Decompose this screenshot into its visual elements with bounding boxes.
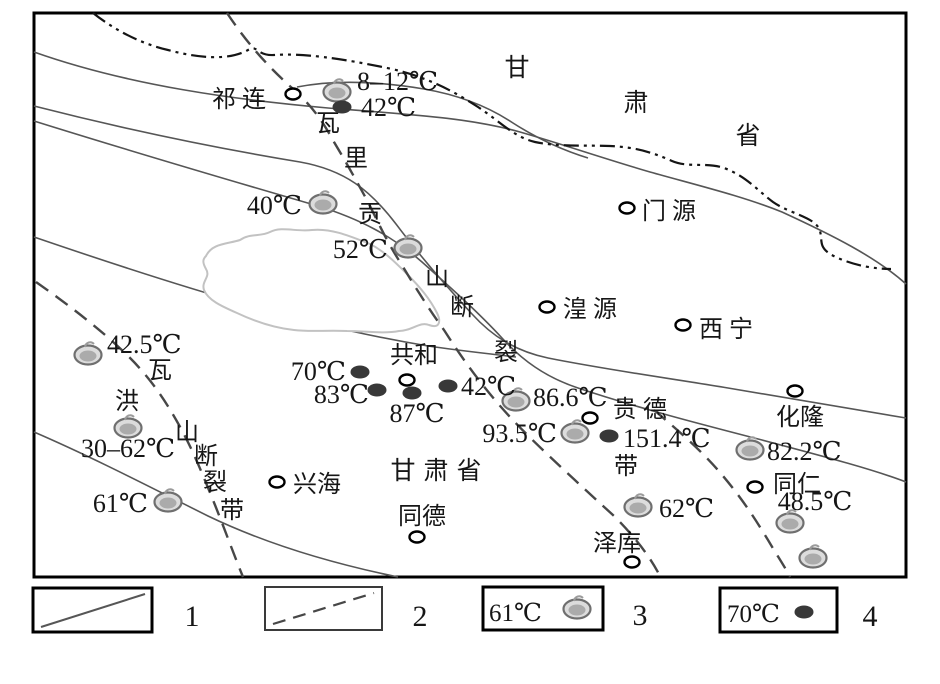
fault-name-char: 山 (425, 264, 449, 291)
fault-name-char: 山 (175, 419, 199, 446)
region-label: 省 (735, 122, 768, 150)
boiling-spring-marker (600, 430, 619, 443)
city-marker (400, 375, 415, 386)
fault-name-char: 裂 (203, 469, 227, 496)
city-marker (748, 482, 763, 493)
region-label: 甘 (504, 54, 537, 82)
boiling-spring-marker (351, 366, 370, 379)
warm-spring-temp-label: 62℃ (659, 494, 714, 523)
city-marker (620, 203, 635, 214)
boiling-spring-marker (403, 387, 422, 400)
city-marker (410, 532, 425, 543)
legend-item-number: 4 (863, 600, 878, 633)
warm-spring-temp-label: 30–62℃ (81, 434, 175, 463)
fault-name-char: 瓦 (316, 111, 340, 137)
city-label: 泽库 (593, 530, 641, 557)
city-marker (676, 320, 691, 331)
boiling-spring-marker (439, 380, 458, 393)
fault-name-char: 断 (450, 294, 474, 321)
fault-name-char: 里 (344, 146, 368, 172)
city-marker (583, 413, 598, 424)
fault-name-char: 带 (614, 453, 638, 480)
region-label: 甘肃省 (390, 457, 489, 485)
city-marker (270, 477, 285, 488)
fault-name-char: 瓦 (148, 358, 172, 384)
legend-item-number: 3 (633, 599, 648, 632)
boiling-spring-temp-label: 151.4℃ (623, 424, 711, 453)
city-marker (540, 302, 555, 313)
warm-spring-temp-label: 82.2℃ (767, 437, 842, 466)
city-label: 湟源 (563, 296, 623, 323)
warm-spring-temp-label: 8–12℃ (357, 67, 438, 96)
warm-spring-temp-label: 93.5℃ (482, 419, 557, 448)
fault-name-char: 裂 (494, 339, 518, 366)
fault-name-char: 带 (220, 497, 244, 524)
legend-warm-spring-temp: 61℃ (489, 600, 542, 627)
city-label: 共和 (390, 342, 438, 369)
boiling-spring-temp-label: 42℃ (361, 93, 416, 122)
region-label: 肃 (623, 89, 656, 117)
boiling-spring-temp-label: 83℃ (314, 380, 369, 409)
warm-spring-temp-label: 86.6℃ (533, 383, 608, 412)
legend-boiling-spring-temp: 70℃ (727, 601, 780, 628)
legend-item-number: 2 (413, 600, 428, 633)
fault-name-char: 断 (194, 443, 218, 470)
boiling-spring-marker (333, 101, 352, 114)
warm-spring-temp-label: 42.5℃ (107, 330, 182, 359)
legend-boiling-spring-symbol (795, 606, 814, 619)
city-label: 门源 (642, 198, 702, 225)
map-figure: 甘肃省甘肃省 瓦里贡山断裂带瓦洪山断裂带 祁连门源湟源西宁共和贵德化隆兴海同德泽… (0, 0, 940, 684)
city-label: 西宁 (699, 316, 759, 343)
fault-name-char: 贡 (358, 202, 382, 228)
boiling-spring-marker (368, 384, 387, 397)
city-label: 化隆 (776, 404, 824, 431)
city-marker (788, 386, 803, 397)
fault-name-char: 洪 (115, 388, 139, 415)
boiling-spring-temp-label: 42℃ (461, 372, 516, 401)
city-label: 贵德 (613, 396, 673, 423)
warm-spring-temp-label: 48.5℃ (778, 487, 853, 516)
legend: 1 2 61℃ 3 70℃ 4 (33, 587, 878, 633)
city-marker (286, 89, 301, 100)
warm-spring-temp-label: 40℃ (247, 191, 302, 220)
city-label: 兴海 (293, 471, 341, 498)
city-label: 祁连 (212, 86, 272, 113)
legend-item-number: 1 (185, 600, 200, 633)
city-label: 同德 (398, 503, 446, 530)
city-marker (625, 557, 640, 568)
warm-spring-temp-label: 52℃ (333, 235, 388, 264)
warm-spring-temp-label: 61℃ (93, 489, 148, 518)
boiling-spring-temp-label: 87℃ (389, 399, 444, 428)
